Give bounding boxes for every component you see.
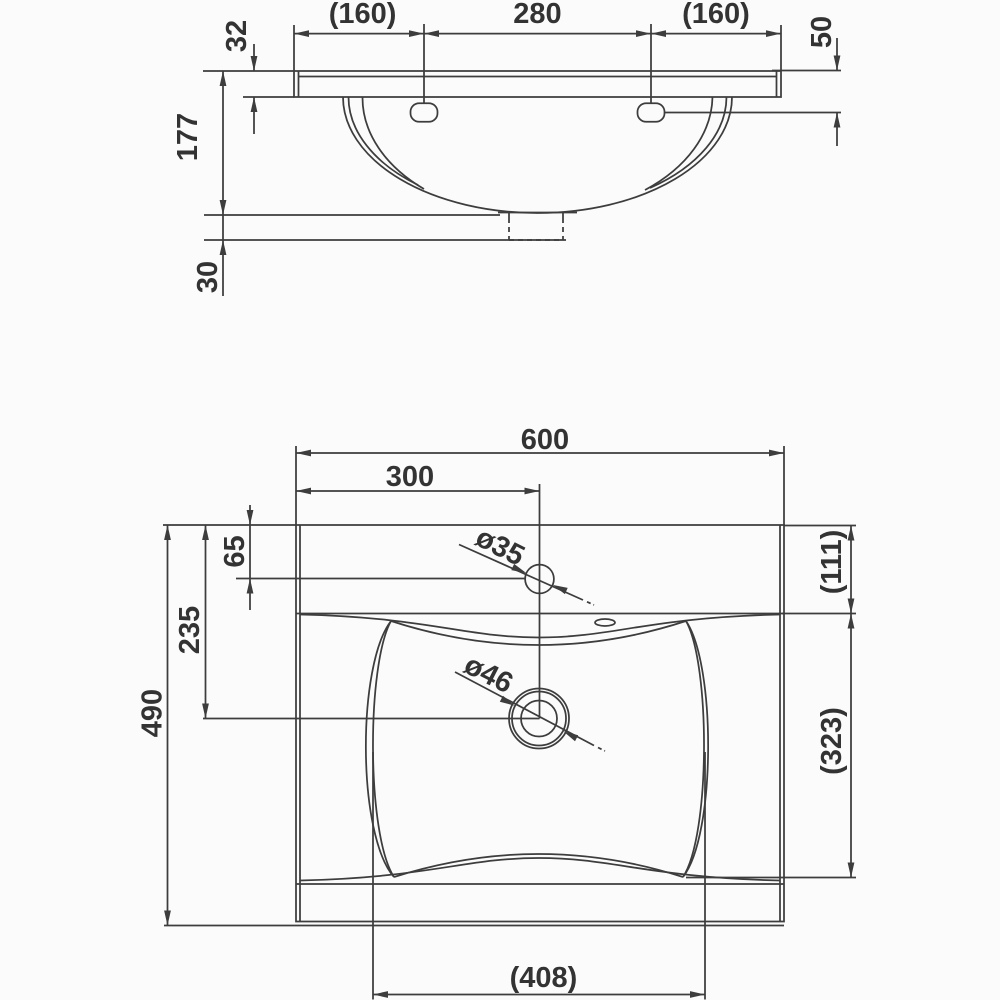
svg-text:(408): (408) bbox=[510, 962, 578, 994]
svg-text:32: 32 bbox=[221, 20, 253, 52]
svg-text:ø35: ø35 bbox=[470, 521, 529, 572]
svg-text:235: 235 bbox=[174, 606, 206, 654]
svg-text:ø46: ø46 bbox=[459, 649, 518, 700]
svg-text:65: 65 bbox=[219, 535, 251, 567]
svg-text:(160): (160) bbox=[682, 0, 750, 30]
svg-text:490: 490 bbox=[137, 689, 169, 737]
svg-text:300: 300 bbox=[386, 461, 434, 493]
svg-text:(323): (323) bbox=[816, 707, 848, 775]
svg-text:(111): (111) bbox=[816, 530, 848, 595]
svg-text:600: 600 bbox=[521, 424, 569, 456]
svg-text:280: 280 bbox=[513, 0, 561, 30]
svg-text:50: 50 bbox=[806, 16, 838, 48]
svg-text:30: 30 bbox=[192, 261, 224, 293]
svg-text:(160): (160) bbox=[329, 0, 397, 30]
svg-text:177: 177 bbox=[172, 113, 204, 161]
